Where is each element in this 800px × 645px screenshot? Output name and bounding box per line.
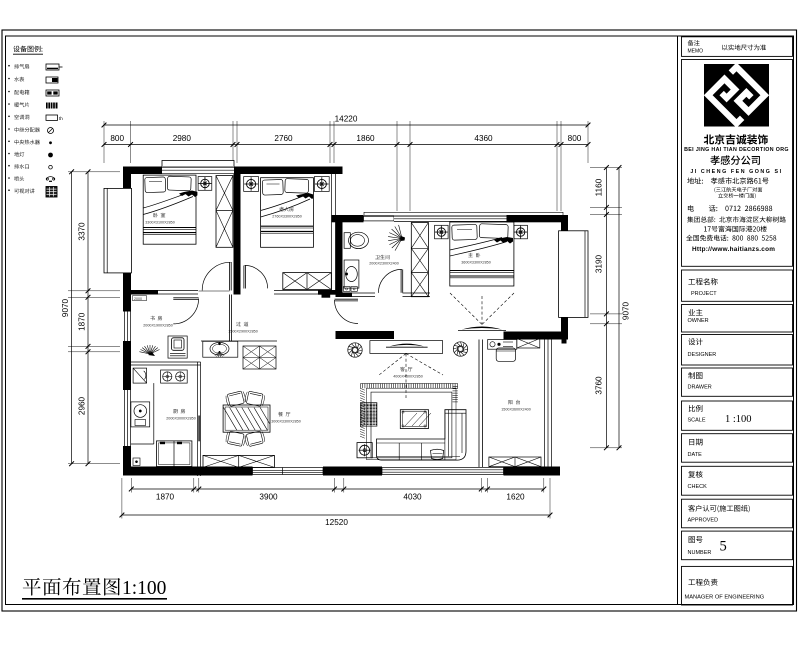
svg-text:CHECK: CHECK xyxy=(688,484,708,490)
svg-text:SCALE: SCALE xyxy=(688,418,706,424)
svg-text:JI CHENG FEN GONG SI: JI CHENG FEN GONG SI xyxy=(690,169,782,175)
svg-text:2760: 2760 xyxy=(274,134,293,143)
svg-text:5: 5 xyxy=(720,539,727,555)
svg-text:3370: 3370 xyxy=(78,222,87,241)
svg-text:2000: 2000 xyxy=(134,297,142,301)
svg-text:4000X4500X2850: 4000X4500X2850 xyxy=(393,375,423,379)
svg-text:9070: 9070 xyxy=(61,298,70,317)
svg-text:1870: 1870 xyxy=(156,493,175,502)
svg-text:NUMBER: NUMBER xyxy=(688,550,712,556)
svg-text:3190: 3190 xyxy=(595,254,604,273)
svg-text:2980: 2980 xyxy=(173,134,192,143)
svg-text:2760X3300X2850: 2760X3300X2850 xyxy=(272,215,302,219)
svg-text:BEI JING HAI TIAN DECORTION OR: BEI JING HAI TIAN DECORTION ORG xyxy=(684,147,789,153)
svg-text:2960: 2960 xyxy=(78,396,87,415)
svg-text:3760: 3760 xyxy=(595,376,604,395)
svg-text:1:100: 1:100 xyxy=(122,578,166,599)
svg-text:12520: 12520 xyxy=(325,518,348,527)
svg-text:th: th xyxy=(59,116,63,121)
svg-text:DESIGNER: DESIGNER xyxy=(688,352,717,358)
svg-text:2000X1900X2850: 2000X1900X2850 xyxy=(143,324,173,328)
svg-text:APPROVED: APPROVED xyxy=(688,517,719,523)
svg-text:1860: 1860 xyxy=(356,134,375,143)
svg-text:PROJECT: PROJECT xyxy=(691,291,717,297)
svg-text:DRAWER: DRAWER xyxy=(688,384,712,390)
svg-text:14220: 14220 xyxy=(335,115,358,124)
svg-text:3300X3100X2850: 3300X3100X2850 xyxy=(145,221,175,225)
svg-text:MEMO: MEMO xyxy=(688,49,704,55)
svg-text:1160: 1160 xyxy=(595,178,604,196)
svg-text:4360: 4360 xyxy=(474,134,493,143)
svg-text:800: 800 xyxy=(110,134,124,143)
svg-text:1500X3600X2400: 1500X3600X2400 xyxy=(501,408,531,412)
svg-text:9070: 9070 xyxy=(622,301,631,320)
svg-text:1620: 1620 xyxy=(506,493,525,502)
svg-text:MANAGER OF ENGINEERING: MANAGER OF ENGINEERING xyxy=(685,595,765,601)
svg-text:800: 800 xyxy=(568,134,582,143)
svg-text:3900: 3900 xyxy=(259,493,278,502)
svg-text:2000X3000X2850: 2000X3000X2850 xyxy=(166,417,196,421)
svg-text:3600X3300X2850: 3600X3300X2850 xyxy=(461,261,491,265)
svg-text:OWNER: OWNER xyxy=(688,318,709,324)
svg-text:Http://www.haitianzs.com: Http://www.haitianzs.com xyxy=(692,246,775,253)
svg-text:3000X3300X2850: 3000X3300X2850 xyxy=(271,420,301,424)
svg-text:2000X2300X2400: 2000X2300X2400 xyxy=(369,262,399,266)
svg-text:1870: 1870 xyxy=(78,312,87,331)
svg-text:1500X2900X2850: 1500X2900X2850 xyxy=(228,330,258,334)
svg-text:4030: 4030 xyxy=(403,493,422,502)
svg-text:1 :100: 1 :100 xyxy=(725,414,752,425)
svg-text:DATE: DATE xyxy=(688,452,703,458)
